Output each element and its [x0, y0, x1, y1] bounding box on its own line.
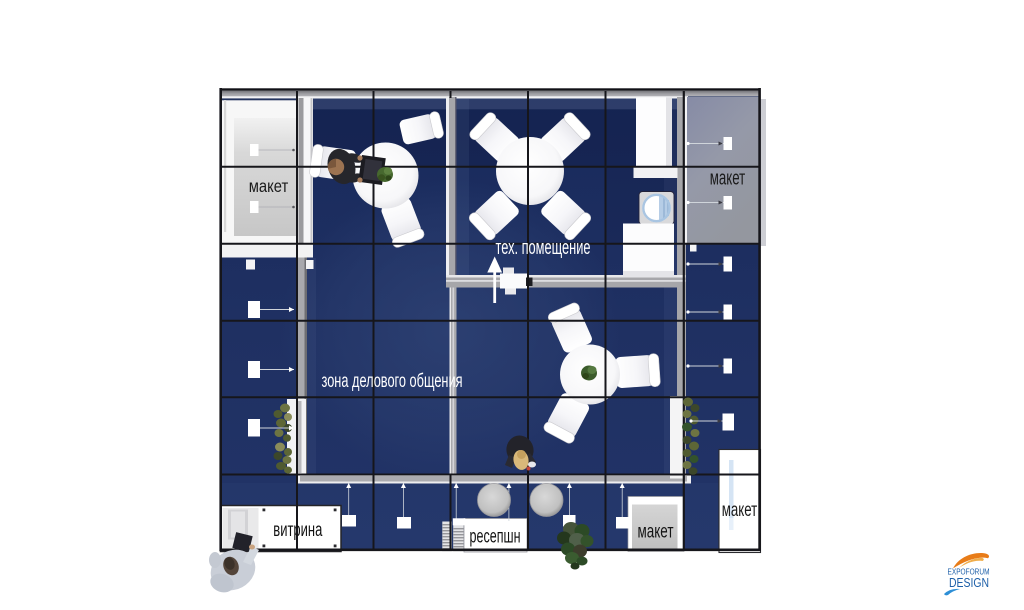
- svg-text:макет: макет: [722, 499, 758, 521]
- svg-text:макет: макет: [249, 176, 289, 196]
- svg-text:макет: макет: [710, 168, 746, 190]
- svg-text:ресепшн: ресепшн: [470, 527, 521, 548]
- svg-text:зона делового общения: зона делового общения: [322, 370, 463, 392]
- svg-text:витрина: витрина: [273, 520, 322, 541]
- svg-text:макет: макет: [638, 522, 674, 543]
- svg-text:DESIGN: DESIGN: [949, 576, 989, 590]
- svg-text:тех. помещение: тех. помещение: [496, 237, 591, 259]
